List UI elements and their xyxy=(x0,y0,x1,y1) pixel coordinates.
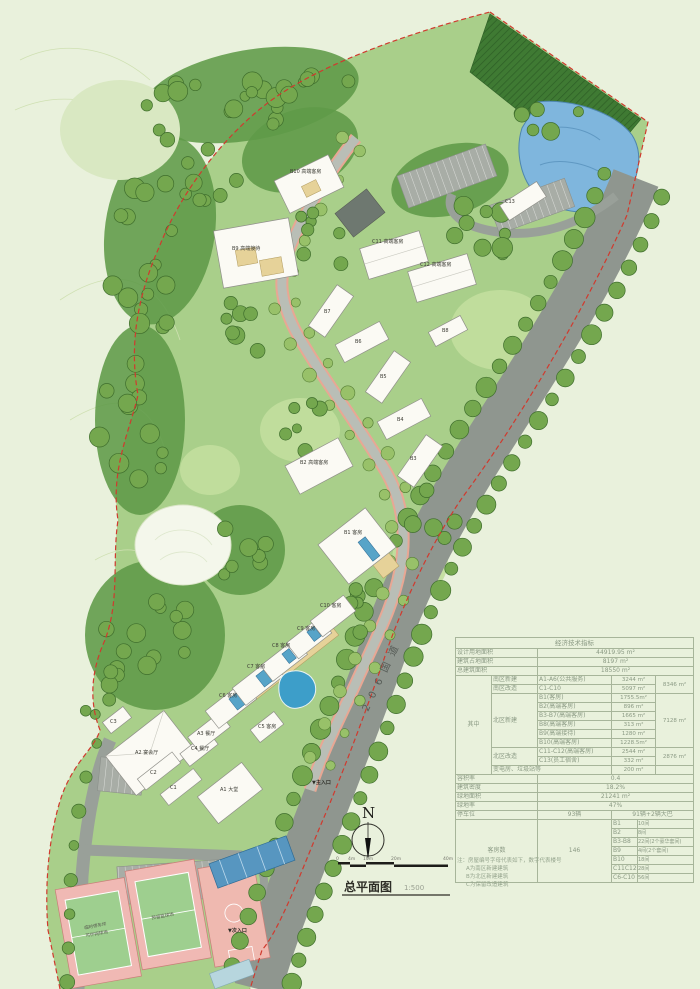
tree-icon xyxy=(213,188,227,202)
land-value: 44919.95 m² xyxy=(538,649,694,658)
main-entrance-label: ▼主入口 xyxy=(312,779,331,786)
rooms-row: B94间(2个套间) xyxy=(612,847,694,856)
label-c6: C6 客房 xyxy=(219,692,237,699)
room-count: 28间 xyxy=(638,866,649,872)
room-id: C11C12 xyxy=(613,865,638,873)
tree-icon xyxy=(60,975,75,989)
density-label: 建筑密度 xyxy=(456,784,538,793)
b10-value: 1228.5m² xyxy=(612,739,656,748)
tree-icon xyxy=(349,652,362,665)
scale-bar: 0 4m 10m 20m 40m xyxy=(336,856,453,867)
tree-icon xyxy=(530,295,546,311)
tree-icon xyxy=(345,430,355,440)
room-count: 4间(2个套间) xyxy=(638,848,668,854)
tree-icon xyxy=(298,928,316,946)
tree-icon xyxy=(342,75,355,88)
tree-icon xyxy=(226,326,240,340)
north-ren-subtotal: 2876 m² xyxy=(656,748,694,766)
tree-icon xyxy=(582,325,602,345)
room-id: B2 xyxy=(613,829,638,837)
rooms-row: B110间 xyxy=(612,820,694,829)
tree-icon xyxy=(149,594,165,610)
tree-icon xyxy=(406,557,419,570)
label-b7: B7 xyxy=(324,309,331,315)
tree-icon xyxy=(397,673,413,689)
tree-icon xyxy=(303,368,317,382)
tree-icon xyxy=(320,697,339,716)
tree-icon xyxy=(316,883,333,900)
among-label: 其中 xyxy=(456,676,492,775)
south-new-item: A1-A6(公共服务) xyxy=(538,676,612,685)
tree-icon xyxy=(307,207,319,219)
tree-icon xyxy=(419,483,434,498)
label-c2: C2 xyxy=(150,770,157,776)
b8-value: 313 m² xyxy=(612,721,656,730)
tree-icon xyxy=(514,107,529,122)
tree-icon xyxy=(480,205,492,217)
tree-icon xyxy=(334,685,347,698)
tree-icon xyxy=(299,235,310,246)
tree-icon xyxy=(644,214,659,229)
tree-icon xyxy=(159,315,174,330)
rooms-row: B28间 xyxy=(612,829,694,838)
tree-icon xyxy=(354,792,367,805)
tree-icon xyxy=(387,695,405,713)
tree-icon xyxy=(431,580,451,600)
tree-icon xyxy=(64,909,75,920)
tree-icon xyxy=(573,107,583,117)
tree-icon xyxy=(296,211,307,222)
south-ren-label: 南区改造 xyxy=(492,685,538,694)
tree-icon xyxy=(118,394,136,412)
tree-icon xyxy=(333,835,352,854)
rooms-row: C6-C1056间 xyxy=(612,874,694,883)
tree-icon xyxy=(467,518,482,533)
tree-icon xyxy=(193,193,206,206)
room-count: 18间 xyxy=(638,857,649,863)
tree-icon xyxy=(292,424,301,433)
tree-icon xyxy=(104,665,118,679)
tree-icon xyxy=(282,973,302,989)
density-value: 18.2% xyxy=(538,784,694,793)
note-line-4: C为保留改造建筑 xyxy=(457,881,562,889)
gfa-label: 总建筑面积 xyxy=(456,667,538,676)
tree-icon xyxy=(334,228,345,239)
tree-icon xyxy=(302,224,314,236)
tree-icon xyxy=(447,514,462,529)
tree-icon xyxy=(138,656,156,674)
label-a2: A2 宴会厅 xyxy=(135,749,158,756)
tree-icon xyxy=(170,610,182,622)
c13-value: 332 m² xyxy=(612,757,656,766)
tree-icon xyxy=(385,521,398,534)
tree-icon xyxy=(292,953,306,967)
tree-icon xyxy=(284,338,296,350)
tree-icon xyxy=(326,761,335,770)
tree-icon xyxy=(100,384,115,399)
tree-icon xyxy=(527,124,539,136)
north-subtotal: 7128 m² xyxy=(656,694,694,748)
tree-icon xyxy=(454,196,473,215)
tree-icon xyxy=(459,215,474,230)
label-b5: B5 xyxy=(380,374,387,380)
tree-icon xyxy=(69,841,79,851)
tree-icon xyxy=(349,583,363,597)
tree-icon xyxy=(229,173,243,187)
tree-icon xyxy=(404,516,421,533)
tree-icon xyxy=(492,238,513,259)
tree-icon xyxy=(103,276,122,295)
tree-icon xyxy=(185,174,202,191)
b2-item: B2(高端客房) xyxy=(538,703,612,712)
tree-icon xyxy=(166,225,178,237)
b3-item: B3-B7(高端客房) xyxy=(538,712,612,721)
tree-icon xyxy=(381,447,394,460)
rooms-row: B3-B822间(2个豪华套间) xyxy=(612,838,694,847)
tree-icon xyxy=(572,350,586,364)
room-count: 10间 xyxy=(638,821,649,827)
tree-icon xyxy=(503,336,521,354)
b1-value: 1755.5m² xyxy=(612,694,656,703)
tree-icon xyxy=(109,453,129,473)
tree-icon xyxy=(381,721,395,735)
scale-tick-40m: 40m xyxy=(443,856,453,862)
room-id: B9 xyxy=(613,847,638,855)
scale-segment xyxy=(366,862,394,865)
north-ren-label: 北区改造 xyxy=(492,748,538,766)
outdoor-pool xyxy=(279,671,316,709)
tree-icon xyxy=(363,459,375,471)
label-c10: C10 客房 xyxy=(320,602,341,609)
lawn-patch xyxy=(180,445,240,495)
room-id: B1 xyxy=(613,820,638,828)
tree-icon xyxy=(250,343,265,358)
south-ren-value: 5097 m² xyxy=(612,685,656,694)
tree-icon xyxy=(221,313,232,324)
label-c13: C13 xyxy=(505,199,515,205)
tree-icon xyxy=(160,132,175,147)
room-id: B10 xyxy=(613,856,638,864)
green-value: 21241 m² xyxy=(538,793,694,802)
parking-label: 停车位 xyxy=(456,811,538,820)
tree-icon xyxy=(179,647,191,659)
tree-icon xyxy=(546,393,559,406)
tree-icon xyxy=(182,157,195,170)
label-a3: A3 餐厅 xyxy=(197,730,215,737)
tree-icon xyxy=(72,804,86,818)
tree-icon xyxy=(598,167,611,180)
tree-icon xyxy=(267,118,279,130)
tree-icon xyxy=(80,705,91,716)
tree-icon xyxy=(491,476,506,491)
tree-icon xyxy=(240,908,257,925)
tree-icon xyxy=(404,647,423,666)
tree-icon xyxy=(127,355,144,372)
tree-icon xyxy=(276,814,294,832)
tree-icon xyxy=(173,621,191,639)
north-arrow: N xyxy=(352,804,384,860)
tree-icon xyxy=(190,79,202,91)
tree-icon xyxy=(64,874,77,887)
tree-icon xyxy=(323,358,333,368)
tree-icon xyxy=(424,606,437,619)
room-count: 56间 xyxy=(638,875,649,881)
plan-title: 总平面图 xyxy=(344,879,392,894)
land-label: 设计用地面积 xyxy=(456,649,538,658)
south-new-label: 南区新建 xyxy=(492,676,538,685)
tree-icon xyxy=(341,386,355,400)
tree-icon xyxy=(575,207,596,228)
label-a1: A1 大堂 xyxy=(220,786,238,793)
tree-icon xyxy=(141,100,152,111)
tree-icon xyxy=(596,304,613,321)
tree-icon xyxy=(246,87,257,98)
tree-icon xyxy=(269,303,281,315)
tree-icon xyxy=(127,624,146,643)
tree-icon xyxy=(353,625,368,640)
parking-value: 93辆 xyxy=(538,811,612,820)
tree-icon xyxy=(334,257,348,271)
scale-segment xyxy=(394,865,448,868)
tree-icon xyxy=(280,428,292,440)
tree-icon xyxy=(340,729,349,738)
tree-icon xyxy=(529,412,547,430)
tree-icon xyxy=(553,251,573,271)
site-plan-page: { "plan": { "title": "总平面图", "scale_text… xyxy=(0,0,700,989)
c13-item: C13(员工宿舍) xyxy=(538,757,612,766)
util-empty xyxy=(656,766,694,775)
north-letter: N xyxy=(362,804,375,822)
tree-icon xyxy=(504,455,520,471)
tree-icon xyxy=(157,175,174,192)
tree-icon xyxy=(379,489,390,500)
tree-icon xyxy=(249,884,266,901)
secondary-entrance-label: ▼次入口 xyxy=(228,927,247,934)
b9-value: 1280 m² xyxy=(612,730,656,739)
tree-icon xyxy=(369,742,388,761)
tree-icon xyxy=(318,718,330,730)
tree-icon xyxy=(280,86,297,103)
south-subtotal: 8346 m² xyxy=(656,676,694,694)
room-id: B3-B8 xyxy=(613,838,638,846)
label-b4: B4 xyxy=(397,417,404,423)
label-c7: C7 客房 xyxy=(247,663,265,670)
tree-icon xyxy=(544,275,557,288)
service-road-horizontal xyxy=(84,850,242,856)
rooms-row: C11C1228间 xyxy=(612,865,694,874)
util-label: 变电房、垃圾站等 xyxy=(492,766,612,775)
label-c5: C5 客房 xyxy=(258,723,276,730)
tree-icon xyxy=(224,296,237,309)
label-b10: B10 高端客房 xyxy=(290,168,321,175)
tree-icon xyxy=(476,377,496,397)
tree-icon xyxy=(304,752,316,764)
label-c4: C4 餐厅 xyxy=(191,745,209,752)
tree-icon xyxy=(376,587,389,600)
tree-icon xyxy=(530,102,544,116)
economic-indicators-table: 经济技术指标 设计用地面积 44919.95 m² 建筑占地面积 8197 m²… xyxy=(455,637,694,883)
tree-icon xyxy=(291,298,300,307)
rooms-row: B1018间 xyxy=(612,856,694,865)
tree-icon xyxy=(289,402,300,413)
tree-icon xyxy=(609,282,626,299)
tree-icon xyxy=(140,424,159,443)
tree-icon xyxy=(225,100,243,118)
label-b3: B3 xyxy=(410,456,417,462)
label-c9: C9 客房 xyxy=(297,625,315,632)
tree-icon xyxy=(201,143,215,157)
tree-icon xyxy=(465,400,482,417)
b10-item: B10(高端客房) xyxy=(538,739,612,748)
label-b2: B2 高端客房 xyxy=(300,459,328,466)
tree-icon xyxy=(654,189,670,205)
tree-icon xyxy=(474,239,491,256)
tree-icon xyxy=(114,209,128,223)
tree-icon xyxy=(116,644,131,659)
tree-icon xyxy=(445,562,458,575)
tree-icon xyxy=(307,906,323,922)
tree-icon xyxy=(129,313,149,333)
label-b8: B8 xyxy=(442,328,449,334)
label-c11: C11 高端客房 xyxy=(372,238,403,245)
label-c8: C8 客房 xyxy=(272,642,290,649)
scale-segment xyxy=(338,862,350,865)
far-value: 0.4 xyxy=(538,775,694,784)
b8-item: B8(高端客房) xyxy=(538,721,612,730)
footprint-value: 8197 m² xyxy=(538,658,694,667)
c11-item: C11-C12(高端客房) xyxy=(538,748,612,757)
tree-icon xyxy=(80,771,92,783)
gfa-value: 18550 m² xyxy=(538,667,694,676)
tree-icon xyxy=(226,560,238,572)
scale-tick-20m: 20m xyxy=(391,856,401,862)
label-b6: B6 xyxy=(355,339,362,345)
tree-icon xyxy=(354,145,366,157)
tree-icon xyxy=(103,693,116,706)
tree-icon xyxy=(447,227,463,243)
tree-icon xyxy=(492,359,507,374)
tree-icon xyxy=(633,237,648,252)
tree-icon xyxy=(157,447,168,458)
tree-icon xyxy=(450,420,469,439)
label-c1: C1 xyxy=(170,785,177,791)
note-line-3: B为北区新建建筑 xyxy=(457,873,562,881)
room-count: 8间 xyxy=(638,830,646,836)
scale-tick-4m: 4m xyxy=(348,856,355,862)
label-c12: C12 高端客房 xyxy=(420,261,451,268)
title-block: 总平面图 1:500 xyxy=(342,879,450,895)
label-c3: C3 xyxy=(110,719,117,725)
tree-icon xyxy=(300,72,315,87)
footprint-label: 建筑占地面积 xyxy=(456,658,538,667)
tree-icon xyxy=(157,276,175,294)
c11-value: 2544 m² xyxy=(612,748,656,757)
note-line-2: A为南区新建建筑 xyxy=(457,865,562,873)
tree-icon xyxy=(336,131,348,143)
tree-icon xyxy=(564,230,583,249)
green-rate-value: 47% xyxy=(538,802,694,811)
tree-icon xyxy=(361,766,378,783)
util-value: 200 m² xyxy=(612,766,656,775)
room-id: C6-C10 xyxy=(613,874,638,882)
tree-icon xyxy=(231,932,248,949)
label-b9: B9 高端接待 xyxy=(232,245,260,252)
tree-icon xyxy=(587,188,603,204)
room-count: 22间(2个豪华套间) xyxy=(638,839,681,845)
green-label: 绿地面积 xyxy=(456,793,538,802)
b3-value: 1665 m² xyxy=(612,712,656,721)
b9-item: B9(高端接待) xyxy=(538,730,612,739)
tree-icon xyxy=(454,538,472,556)
tree-icon xyxy=(244,307,258,321)
table-title: 经济技术指标 xyxy=(456,638,694,649)
scale-segment xyxy=(350,865,366,868)
b1-item: B1(客房) xyxy=(538,694,612,703)
b2-value: 896 m² xyxy=(612,703,656,712)
tree-icon xyxy=(217,521,233,537)
tree-icon xyxy=(287,792,301,806)
clearing xyxy=(135,505,231,585)
tree-icon xyxy=(168,81,188,101)
plan-scale: 1:500 xyxy=(404,884,424,892)
tree-icon xyxy=(306,398,317,409)
tree-icon xyxy=(293,766,313,786)
tree-icon xyxy=(621,260,636,275)
tree-icon xyxy=(130,470,148,488)
tree-icon xyxy=(542,122,560,140)
tree-icon xyxy=(89,427,109,447)
tree-icon xyxy=(297,247,311,261)
label-b1: B1 客房 xyxy=(344,529,362,536)
tree-icon xyxy=(136,183,154,201)
tree-icon xyxy=(519,317,533,331)
south-ren-item: C1-C10 xyxy=(538,685,612,694)
note-line-1: 注：房屋编号字母代表如下，数字代表楼号 xyxy=(457,857,562,865)
green-rate-label: 绿地率 xyxy=(456,802,538,811)
far-label: 容积率 xyxy=(456,775,538,784)
tree-icon xyxy=(240,539,258,557)
north-new-label: 北区新建 xyxy=(492,694,538,748)
tree-icon xyxy=(412,624,432,644)
tree-icon xyxy=(518,435,531,448)
tree-icon xyxy=(556,369,574,387)
scale-tick-10m: 10m xyxy=(363,856,373,862)
scale-tick-0: 0 xyxy=(336,856,339,862)
tree-icon xyxy=(477,495,496,514)
south-new-value: 3244 m² xyxy=(612,676,656,685)
legend-notes: 注：房屋编号字母代表如下，数字代表楼号 A为南区新建建筑 B为北区新建建筑 C为… xyxy=(457,857,562,889)
parking-detail: 91辆+2辆大巴 xyxy=(612,811,694,820)
tree-icon xyxy=(62,942,74,954)
tree-icon xyxy=(363,418,373,428)
tree-icon xyxy=(155,463,166,474)
